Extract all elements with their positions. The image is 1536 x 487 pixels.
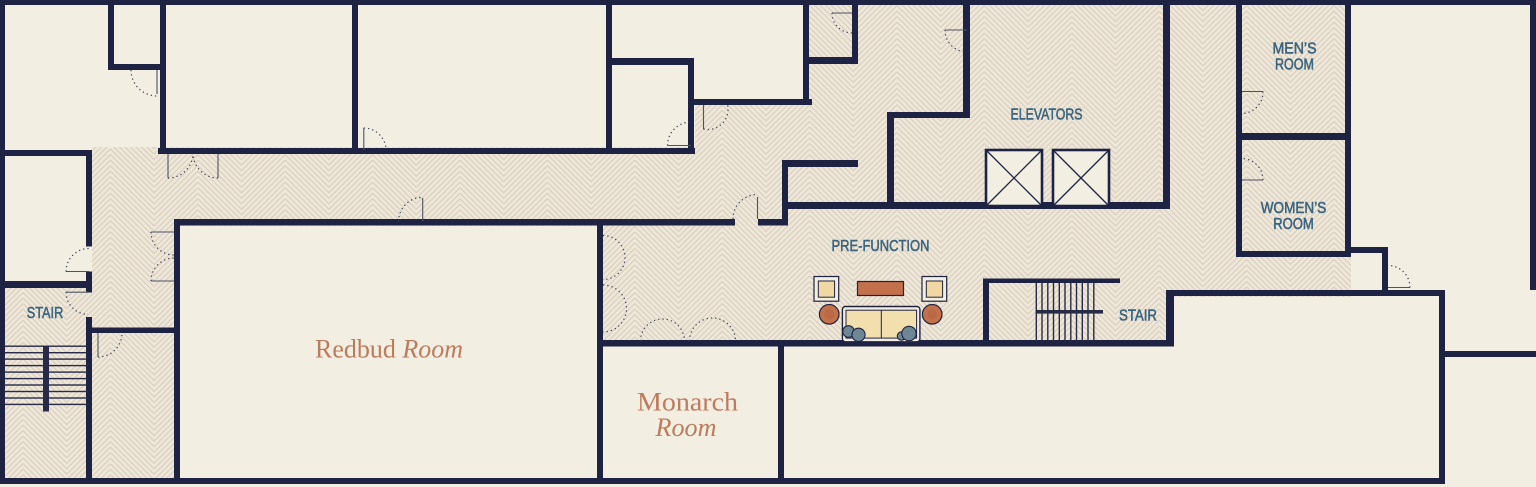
svg-text:ROOM: ROOM bbox=[1275, 56, 1314, 73]
svg-text:STAIR: STAIR bbox=[1119, 307, 1157, 324]
svg-text:STAIR: STAIR bbox=[27, 305, 64, 322]
svg-text:MEN’S: MEN’S bbox=[1273, 40, 1317, 57]
svg-text:ELEVATORS: ELEVATORS bbox=[1011, 107, 1083, 124]
svg-text:ROOM: ROOM bbox=[1273, 216, 1314, 233]
svg-text:Room: Room bbox=[654, 413, 716, 442]
svg-text:PRE-FUNCTION: PRE-FUNCTION bbox=[832, 238, 930, 255]
svg-text:Redbud Room: Redbud Room bbox=[315, 335, 463, 364]
svg-text:WOMEN’S: WOMEN’S bbox=[1261, 200, 1327, 217]
